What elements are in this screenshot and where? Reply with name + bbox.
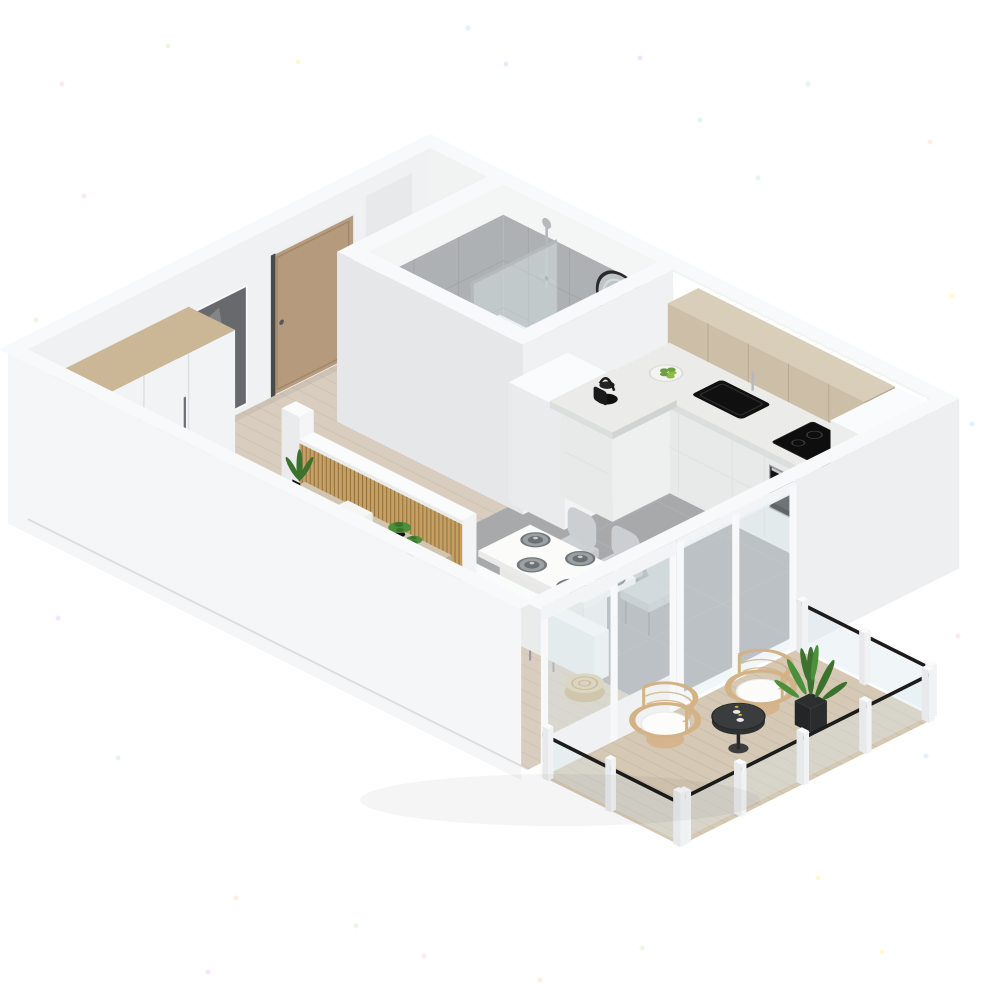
ground-shadow: [360, 774, 760, 826]
floor-plan-render: 3D isometric apartment floor plan render: [0, 0, 1000, 1000]
counter-return: [550, 369, 677, 522]
kitchen-faucet: [753, 372, 754, 391]
apartment-3d-scene: 3D isometric apartment floor plan render: [0, 0, 1000, 1000]
